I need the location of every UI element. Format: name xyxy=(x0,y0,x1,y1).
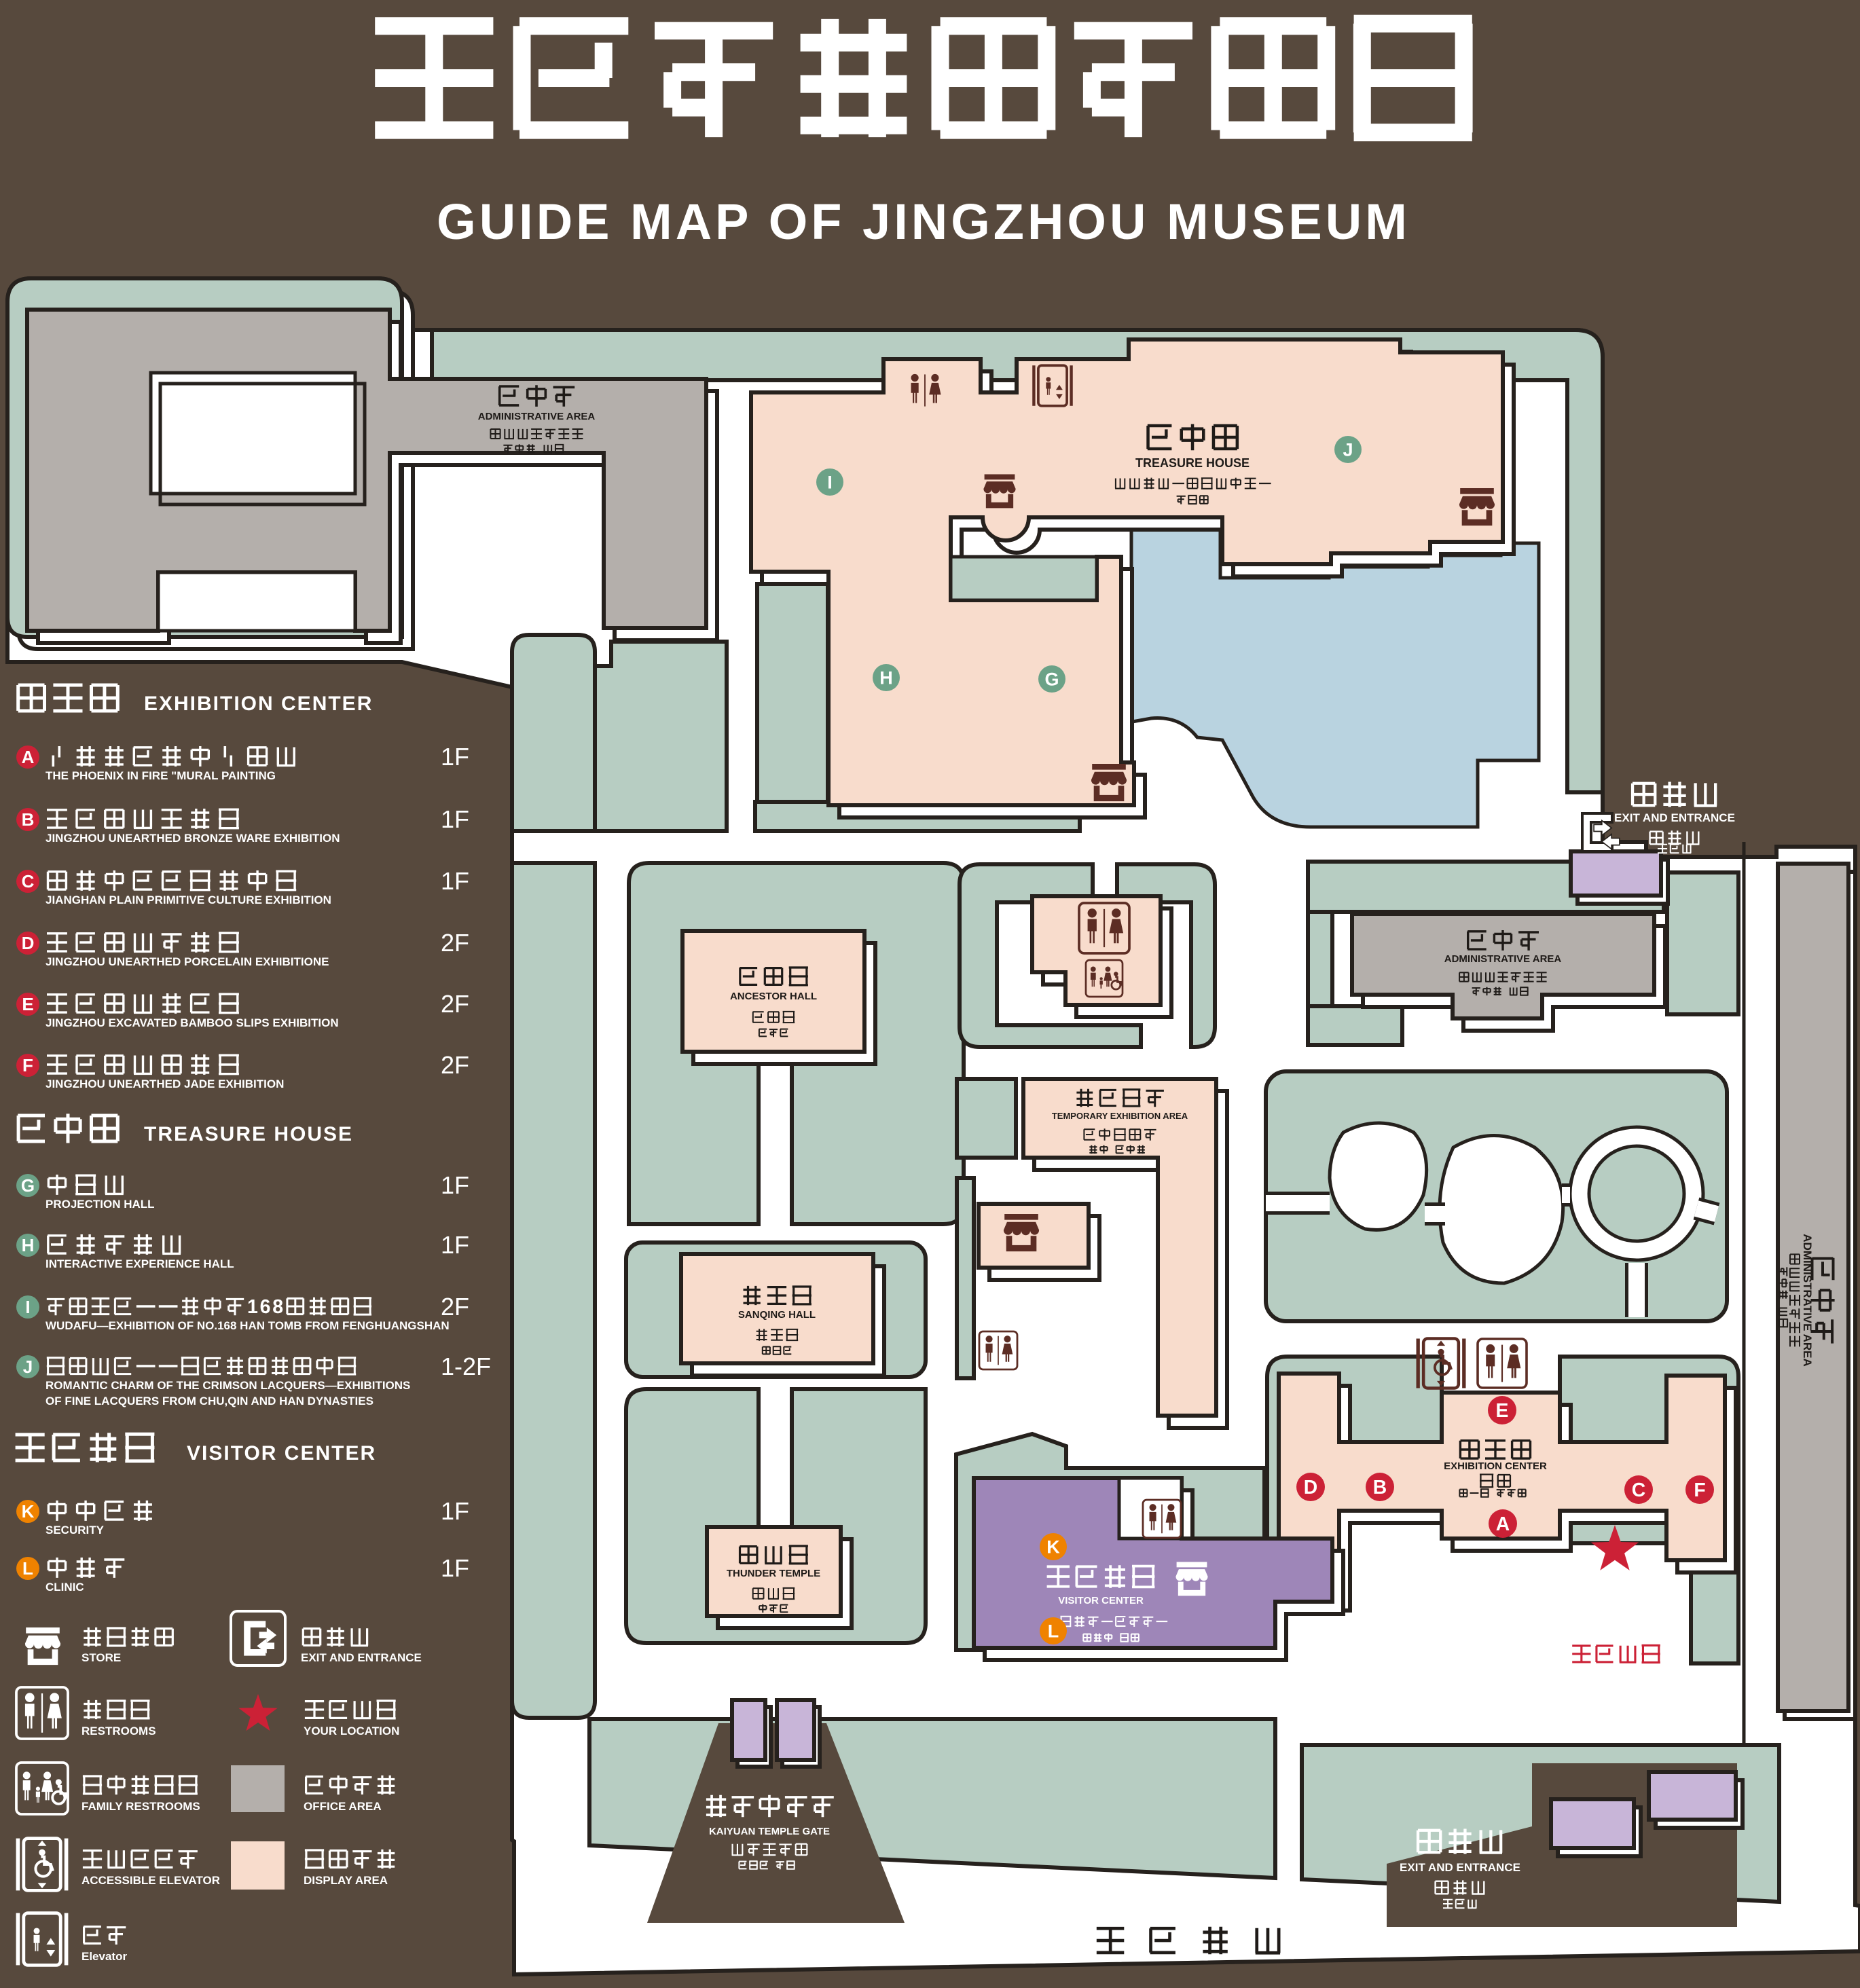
svg-text:TREASURE HOUSE: TREASURE HOUSE xyxy=(144,1123,353,1145)
svg-text:A: A xyxy=(22,747,35,767)
svg-text:D: D xyxy=(22,933,35,953)
svg-text:H: H xyxy=(22,1235,35,1255)
svg-text:G: G xyxy=(1044,669,1059,689)
svg-text:EXIT AND ENTRANCE: EXIT AND ENTRANCE xyxy=(1614,811,1735,824)
svg-text:OF FINE LACQUERS FROM CHU,QIN: OF FINE LACQUERS FROM CHU,QIN AND HAN DY… xyxy=(45,1395,373,1407)
svg-text:KAIYUAN TEMPLE GATE: KAIYUAN TEMPLE GATE xyxy=(709,1826,830,1837)
svg-text:1F: 1F xyxy=(441,1497,469,1525)
svg-text:OFFICE AREA: OFFICE AREA xyxy=(304,1800,382,1813)
svg-text:JIANGHAN PLAIN PRIMITIVE CULTU: JIANGHAN PLAIN PRIMITIVE CULTURE EXHIBIT… xyxy=(45,894,331,906)
svg-text:THUNDER TEMPLE: THUNDER TEMPLE xyxy=(727,1568,820,1579)
svg-text:L: L xyxy=(1048,1621,1059,1641)
svg-text:EXHIBITION CENTER: EXHIBITION CENTER xyxy=(144,693,373,715)
svg-text:GUIDE MAP OF JINGZHOU MUSEUM: GUIDE MAP OF JINGZHOU MUSEUM xyxy=(437,194,1410,250)
svg-text:EXIT AND ENTRANCE: EXIT AND ENTRANCE xyxy=(301,1651,422,1664)
svg-text:1F: 1F xyxy=(441,1171,469,1199)
svg-text:VISITOR CENTER: VISITOR CENTER xyxy=(1058,1595,1144,1606)
svg-text:2F: 2F xyxy=(441,1051,469,1079)
svg-text:YOUR LOCATION: YOUR LOCATION xyxy=(304,1725,399,1737)
svg-text:ROMANTIC CHARM OF THE CRIMSON: ROMANTIC CHARM OF THE CRIMSON LACQUERS—E… xyxy=(45,1379,410,1392)
svg-text:EXIT AND ENTRANCE: EXIT AND ENTRANCE xyxy=(1400,1861,1520,1874)
svg-text:1F: 1F xyxy=(441,867,469,895)
svg-text:8: 8 xyxy=(272,1296,283,1318)
svg-text:DISPLAY AREA: DISPLAY AREA xyxy=(304,1874,388,1887)
svg-text:1F: 1F xyxy=(441,1231,469,1259)
svg-text:PROJECTION HALL: PROJECTION HALL xyxy=(45,1198,155,1211)
svg-text:STORE: STORE xyxy=(81,1651,121,1664)
svg-text:INTERACTIVE EXPERIENCE HALL: INTERACTIVE EXPERIENCE HALL xyxy=(45,1257,234,1270)
svg-text:D: D xyxy=(1304,1477,1317,1498)
svg-text:SANQING HALL: SANQING HALL xyxy=(738,1309,816,1321)
svg-text:SECURITY: SECURITY xyxy=(45,1524,105,1536)
svg-text:JINGZHOU UNEARTHED BRONZE WARE: JINGZHOU UNEARTHED BRONZE WARE EXHIBITIO… xyxy=(45,832,340,845)
svg-text:1F: 1F xyxy=(441,743,469,771)
svg-text:RESTROOMS: RESTROOMS xyxy=(81,1725,156,1737)
svg-text:WUDAFU—EXHIBITION OF NO.168 HA: WUDAFU—EXHIBITION OF NO.168 HAN TOMB FRO… xyxy=(45,1319,450,1332)
svg-text:G: G xyxy=(21,1175,35,1196)
svg-text:E: E xyxy=(1496,1400,1509,1422)
svg-text:I: I xyxy=(25,1297,30,1317)
svg-text:1F: 1F xyxy=(441,1554,469,1582)
svg-text:C: C xyxy=(1632,1479,1645,1501)
svg-text:2F: 2F xyxy=(441,990,469,1018)
svg-text:B: B xyxy=(1373,1477,1387,1498)
svg-text:1F: 1F xyxy=(441,805,469,833)
svg-text:H: H xyxy=(879,667,893,688)
svg-text:C: C xyxy=(22,871,35,891)
svg-text:J: J xyxy=(23,1357,33,1377)
svg-text:I: I xyxy=(827,472,833,492)
svg-text:K: K xyxy=(1046,1536,1060,1557)
svg-text:CLINIC: CLINIC xyxy=(45,1581,84,1594)
svg-text:6: 6 xyxy=(260,1296,271,1318)
svg-text:K: K xyxy=(22,1501,35,1522)
svg-text:TREASURE HOUSE: TREASURE HOUSE xyxy=(1135,456,1250,470)
svg-text:JINGZHOU UNEARTHED PORCELAIN E: JINGZHOU UNEARTHED PORCELAIN EXHIBITIONE xyxy=(45,955,329,968)
svg-text:VISITOR CENTER: VISITOR CENTER xyxy=(187,1442,376,1465)
svg-text:2F: 2F xyxy=(441,929,469,957)
svg-text:Elevator: Elevator xyxy=(81,1950,127,1963)
svg-text:ACCESSIBLE ELEVATOR: ACCESSIBLE ELEVATOR xyxy=(81,1874,220,1887)
svg-text:F: F xyxy=(1694,1479,1705,1501)
svg-text:A: A xyxy=(1496,1513,1510,1535)
svg-text:2F: 2F xyxy=(441,1293,469,1321)
svg-text:1: 1 xyxy=(247,1296,258,1318)
svg-text:1-2F: 1-2F xyxy=(441,1352,491,1380)
svg-text:TEMPORARY EXHIBITION AREA: TEMPORARY EXHIBITION AREA xyxy=(1052,1111,1188,1121)
svg-text:ANCESTOR HALL: ANCESTOR HALL xyxy=(730,991,817,1002)
svg-text:F: F xyxy=(22,1055,33,1075)
svg-text:B: B xyxy=(22,809,35,830)
svg-text:ADMINISTRATIVE AREA: ADMINISTRATIVE AREA xyxy=(1801,1234,1814,1367)
svg-text:THE PHOENIX IN FIRE "MURAL PAI: THE PHOENIX IN FIRE "MURAL PAINTING xyxy=(45,769,276,782)
svg-text:E: E xyxy=(22,994,33,1014)
svg-text:JINGZHOU UNEARTHED JADE EXHIBI: JINGZHOU UNEARTHED JADE EXHIBITION xyxy=(45,1078,284,1090)
svg-text:ADMINISTRATIVE AREA: ADMINISTRATIVE AREA xyxy=(1444,953,1562,965)
svg-text:L: L xyxy=(22,1558,33,1579)
svg-text:J: J xyxy=(1343,439,1353,460)
svg-text:ADMINISTRATIVE AREA: ADMINISTRATIVE AREA xyxy=(478,411,596,422)
svg-text:EXHIBITION CENTER: EXHIBITION CENTER xyxy=(1444,1460,1547,1472)
svg-text:FAMILY RESTROOMS: FAMILY RESTROOMS xyxy=(81,1800,200,1813)
svg-text:JINGZHOU EXCAVATED BAMBOO SLIP: JINGZHOU EXCAVATED BAMBOO SLIPS EXHIBITI… xyxy=(45,1016,339,1029)
